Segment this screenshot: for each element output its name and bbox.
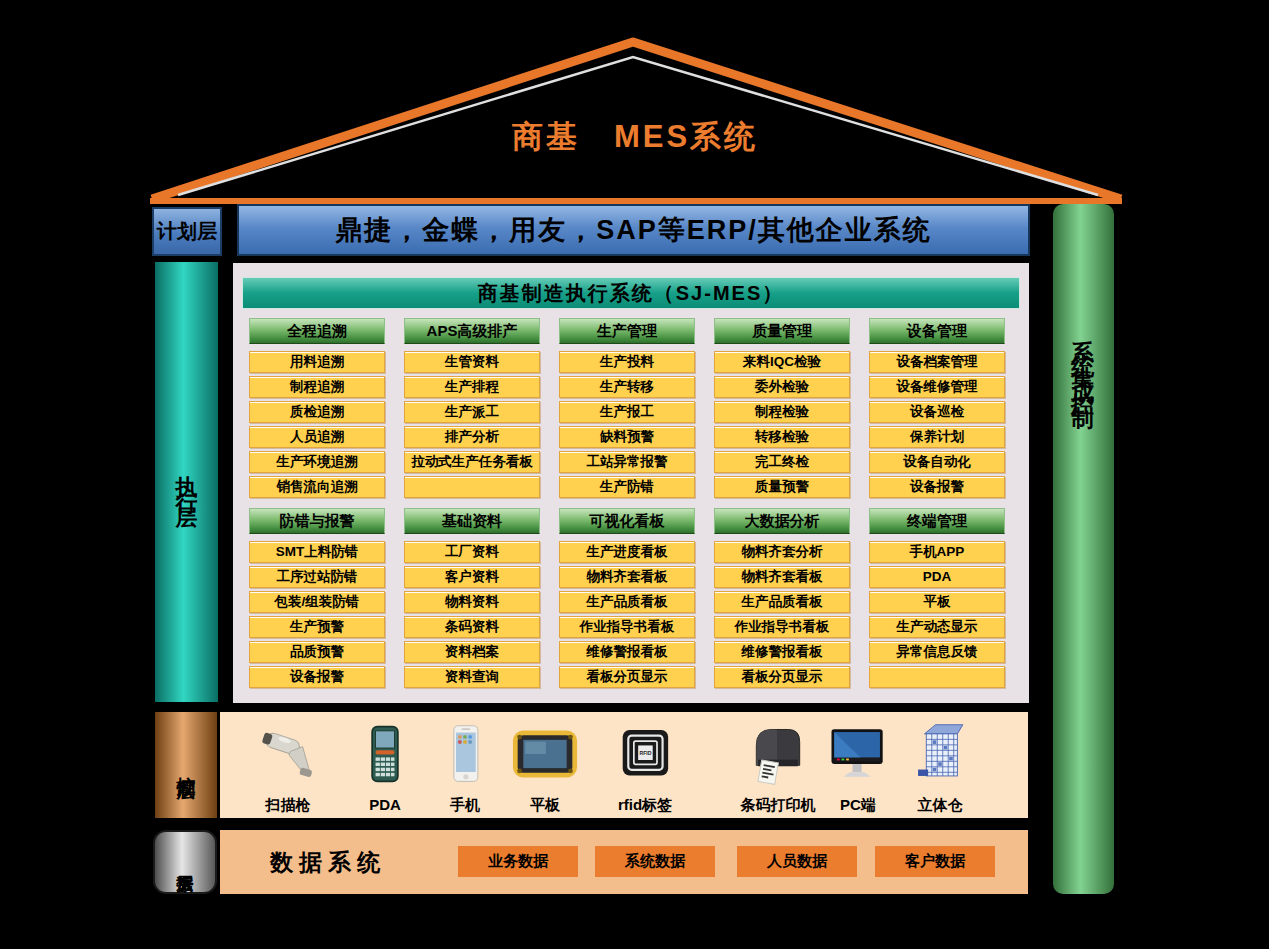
module-item: 看板分页显示	[559, 666, 695, 688]
module-item: 包装/组装防错	[249, 591, 385, 613]
module-item: 排产分析	[404, 426, 540, 448]
module-item: 拉动式生产任务看板	[404, 451, 540, 473]
device-label: 立体仓	[918, 796, 963, 813]
module-item: 物料齐套看板	[559, 566, 695, 588]
module-item: 维修警报看板	[714, 641, 850, 663]
module-item: 生产防错	[559, 476, 695, 498]
module-item: 物料齐套看板	[714, 566, 850, 588]
module-group: 基础资料工厂资料客户资料物料资料条码资料资料档案资料查询	[404, 508, 540, 691]
module-item: 生产环境追溯	[249, 451, 385, 473]
module-item: 工厂资料	[404, 541, 540, 563]
system-integration-bar-text: 系统集成控制	[1068, 322, 1099, 400]
module-group: 终端管理手机APPPDA平板生产动态显示异常信息反馈	[869, 508, 1005, 691]
module-item: 生产派工	[404, 401, 540, 423]
module-item: 制程追溯	[249, 376, 385, 398]
mes-architecture-diagram: 商基 MES系统 计划层 鼎捷，金蝶，用友，SAP等ERP/其他企业系统 执行层…	[0, 0, 1269, 949]
sj-mes-header: 商基制造执行系统（SJ-MES）	[242, 277, 1020, 309]
module-item: 用料追溯	[249, 351, 385, 373]
module-item: 生产预警	[249, 616, 385, 638]
module-item: 看板分页显示	[714, 666, 850, 688]
planning-layer-label: 计划层	[152, 207, 222, 256]
module-group-title: 终端管理	[869, 508, 1005, 534]
control-device-strip: 扫描枪PDA手机平板RFIDrfid标签条码打印机PC端立体仓	[220, 712, 1028, 818]
module-group: 大数据分析物料齐套分析物料齐套看板生产品质看板作业指导书看板维修警报看板看板分页…	[714, 508, 850, 691]
module-item: 生管资料	[404, 351, 540, 373]
database-chip: 人员数据	[737, 846, 857, 877]
module-item: 保养计划	[869, 426, 1005, 448]
module-item: 设备报警	[869, 476, 1005, 498]
module-groups-row1: 全程追溯用料追溯制程追溯质检追溯人员追溯生产环境追溯销售流向追溯APS高级排产生…	[249, 318, 1013, 501]
module-group-title: 大数据分析	[714, 508, 850, 534]
barcode-printer-icon	[745, 712, 811, 796]
warehouse-icon	[908, 712, 972, 796]
module-item: 资料档案	[404, 641, 540, 663]
barcode-scanner-icon	[256, 712, 320, 796]
module-group-title: 设备管理	[869, 318, 1005, 344]
module-item: 工站异常报警	[559, 451, 695, 473]
device-label: 手机	[450, 796, 480, 813]
database-chip: 业务数据	[458, 846, 578, 877]
module-item: 作业指导书看板	[559, 616, 695, 638]
module-group: 质量管理来料IQC检验委外检验制程检验转移检验完工终检质量预警	[714, 318, 850, 501]
module-item: 平板	[869, 591, 1005, 613]
device-label: PDA	[369, 796, 401, 813]
module-group-title: 可视化看板	[559, 508, 695, 534]
module-item: 缺料预警	[559, 426, 695, 448]
device-label: rfid标签	[618, 796, 672, 813]
device: 立体仓	[885, 712, 995, 818]
module-group: 生产管理生产投料生产转移生产报工缺料预警工站异常报警生产防错	[559, 318, 695, 501]
smartphone-icon	[435, 712, 495, 796]
module-item: 设备自动化	[869, 451, 1005, 473]
module-item: 设备巡检	[869, 401, 1005, 423]
module-group-title: 防错与报警	[249, 508, 385, 534]
module-group: 设备管理设备档案管理设备维修管理设备巡检保养计划设备自动化设备报警	[869, 318, 1005, 501]
erp-systems-text: 鼎捷，金蝶，用友，SAP等ERP/其他企业系统	[335, 212, 932, 248]
module-item: 生产进度看板	[559, 541, 695, 563]
module-item: 作业指导书看板	[714, 616, 850, 638]
module-item: 工序过站防错	[249, 566, 385, 588]
module-item: 维修警报看板	[559, 641, 695, 663]
database-chip: 客户数据	[875, 846, 995, 877]
data-layer-label: 数据层	[153, 830, 217, 894]
module-item: 生产品质看板	[714, 591, 850, 613]
module-item: 物料齐套分析	[714, 541, 850, 563]
module-item: SMT上料防错	[249, 541, 385, 563]
module-item: 手机APP	[869, 541, 1005, 563]
module-item: 销售流向追溯	[249, 476, 385, 498]
module-group-title: 质量管理	[714, 318, 850, 344]
module-item: 转移检验	[714, 426, 850, 448]
module-item: 生产投料	[559, 351, 695, 373]
database-chip: 系统数据	[595, 846, 715, 877]
module-item: 来料IQC检验	[714, 351, 850, 373]
sj-mes-header-text: 商基制造执行系统（SJ-MES）	[478, 280, 784, 307]
module-item: 生产转移	[559, 376, 695, 398]
data-system-title: 数据系统	[270, 830, 386, 894]
module-groups-row2: 防错与报警SMT上料防错工序过站防错包装/组装防错生产预警品质预警设备报警基础资…	[249, 508, 1013, 691]
module-item: 完工终检	[714, 451, 850, 473]
execution-panel: 商基制造执行系统（SJ-MES） 全程追溯用料追溯制程追溯质检追溯人员追溯生产环…	[233, 263, 1029, 703]
execution-layer-label: 执行层	[155, 262, 218, 702]
rfid-tag-icon: RFID	[615, 712, 675, 796]
module-item: 质量预警	[714, 476, 850, 498]
pc-icon	[826, 712, 890, 796]
module-group-title: APS高级排产	[404, 318, 540, 344]
module-item: 异常信息反馈	[869, 641, 1005, 663]
module-item: 客户资料	[404, 566, 540, 588]
page-title: 商基 MES系统	[235, 116, 1035, 158]
module-item: 制程检验	[714, 401, 850, 423]
module-item-empty	[404, 476, 540, 498]
module-group: 防错与报警SMT上料防错工序过站防错包装/组装防错生产预警品质预警设备报警	[249, 508, 385, 691]
planning-layer-label-text: 计划层	[157, 218, 217, 245]
device-label: 扫描枪	[266, 796, 311, 813]
module-item: 人员追溯	[249, 426, 385, 448]
control-layer-label: 控制层	[155, 712, 217, 818]
module-item: 设备报警	[249, 666, 385, 688]
module-item: 条码资料	[404, 616, 540, 638]
module-item: 设备档案管理	[869, 351, 1005, 373]
erp-systems-bar: 鼎捷，金蝶，用友，SAP等ERP/其他企业系统	[237, 204, 1030, 256]
device-label: 平板	[530, 796, 560, 813]
data-system-strip: 数据系统 业务数据系统数据人员数据客户数据	[220, 830, 1028, 894]
module-group: 可视化看板生产进度看板物料齐套看板生产品质看板作业指导书看板维修警报看板看板分页…	[559, 508, 695, 691]
pda-icon	[355, 712, 415, 796]
module-item: 生产品质看板	[559, 591, 695, 613]
execution-layer-label-text: 执行层	[172, 458, 202, 506]
device: 平板	[490, 712, 600, 818]
tablet-icon	[512, 712, 578, 796]
module-item: 委外检验	[714, 376, 850, 398]
module-item: 生产报工	[559, 401, 695, 423]
module-item: 设备维修管理	[869, 376, 1005, 398]
module-group-title: 生产管理	[559, 318, 695, 344]
module-group-title: 全程追溯	[249, 318, 385, 344]
device: 扫描枪	[233, 712, 343, 818]
device-label: PC端	[840, 796, 876, 813]
module-group-title: 基础资料	[404, 508, 540, 534]
module-item: 物料资料	[404, 591, 540, 613]
module-item: 生产动态显示	[869, 616, 1005, 638]
module-item: 品质预警	[249, 641, 385, 663]
control-layer-label-text: 控制层	[173, 762, 199, 768]
module-item: 生产排程	[404, 376, 540, 398]
device: RFIDrfid标签	[590, 712, 700, 818]
svg-text:RFID: RFID	[639, 750, 651, 756]
module-item: 资料查询	[404, 666, 540, 688]
module-item: 质检追溯	[249, 401, 385, 423]
module-item: PDA	[869, 566, 1005, 588]
module-group: 全程追溯用料追溯制程追溯质检追溯人员追溯生产环境追溯销售流向追溯	[249, 318, 385, 501]
system-integration-bar: 系统集成控制	[1053, 204, 1114, 894]
module-item-empty	[869, 666, 1005, 688]
module-group: APS高级排产生管资料生产排程生产派工排产分析拉动式生产任务看板	[404, 318, 540, 501]
